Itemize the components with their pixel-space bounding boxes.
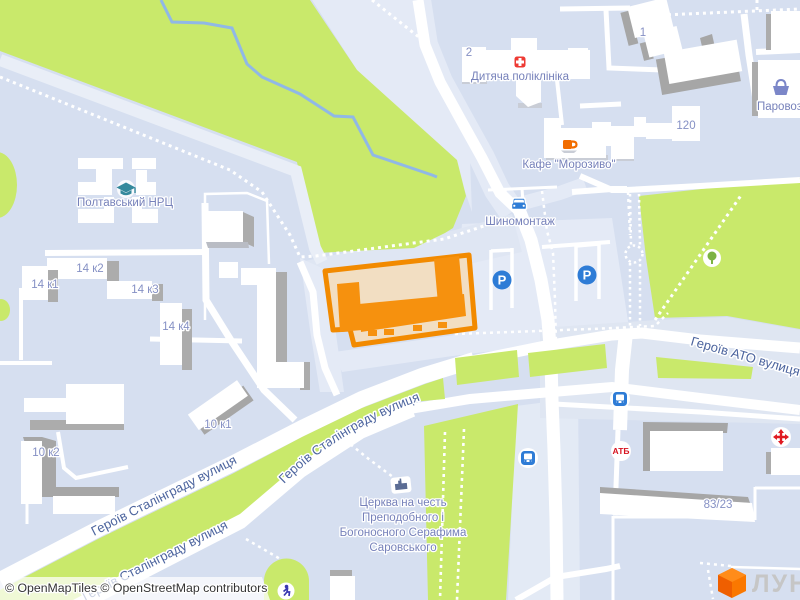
svg-text:Богоносного Серафима: Богоносного Серафима xyxy=(340,527,467,539)
svg-text:10 к1: 10 к1 xyxy=(204,419,231,431)
svg-text:Полтавський НРЦ: Полтавський НРЦ xyxy=(77,197,173,209)
svg-text:P: P xyxy=(498,273,507,288)
svg-text:Паровозна: Паровозна xyxy=(757,101,800,113)
svg-text:2: 2 xyxy=(466,47,472,59)
svg-text:1: 1 xyxy=(640,27,646,39)
svg-text:120: 120 xyxy=(676,120,695,132)
svg-text:© OpenMapTiles © OpenStreetMap: © OpenMapTiles © OpenStreetMap contribut… xyxy=(5,581,267,595)
svg-text:Преподобного і: Преподобного і xyxy=(362,512,444,524)
svg-text:14 к3: 14 к3 xyxy=(131,284,158,296)
svg-text:10 к2: 10 к2 xyxy=(32,447,59,459)
svg-text:Саровського: Саровського xyxy=(369,542,436,554)
svg-text:83/23: 83/23 xyxy=(704,499,733,511)
svg-text:P: P xyxy=(583,268,592,283)
svg-text:14 к2: 14 к2 xyxy=(76,263,103,275)
svg-text:Шиномонтаж: Шиномонтаж xyxy=(485,216,555,228)
svg-text:14 к4: 14 к4 xyxy=(162,321,190,333)
svg-text:Церква на честь: Церква на честь xyxy=(359,497,446,509)
svg-text:ЛУН: ЛУН xyxy=(752,570,800,598)
svg-text:14 к1: 14 к1 xyxy=(31,279,58,291)
svg-text:Кафе "Морозиво": Кафе "Морозиво" xyxy=(522,159,615,171)
svg-text:Дитяча поліклініка: Дитяча поліклініка xyxy=(471,71,570,83)
svg-text:АТБ: АТБ xyxy=(612,446,629,456)
